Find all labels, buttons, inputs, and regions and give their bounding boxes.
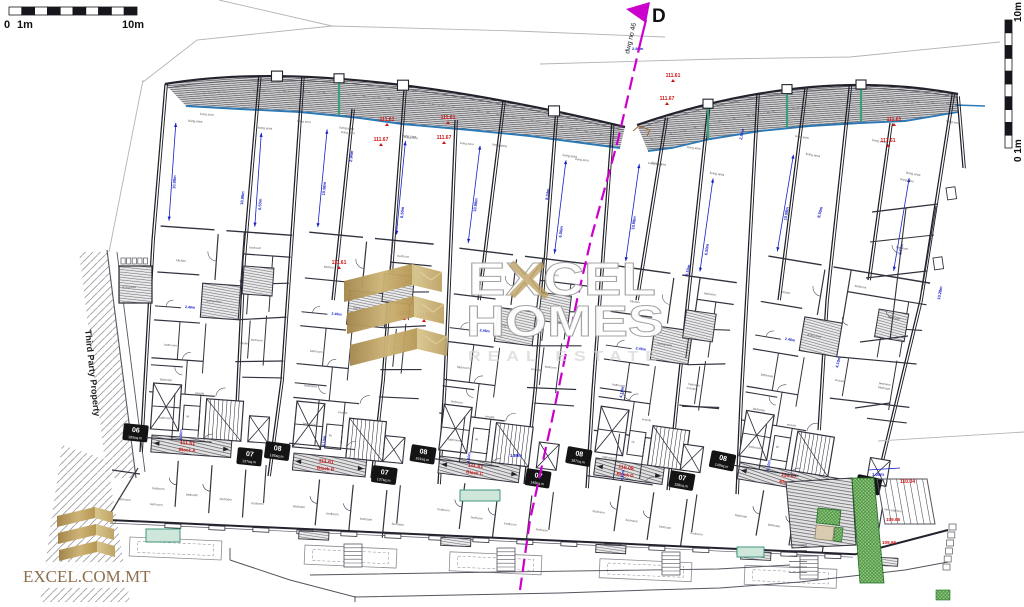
svg-text:ensuite: ensuite: [195, 391, 205, 396]
svg-text:07: 07: [678, 474, 687, 482]
svg-text:111.61: 111.61: [441, 115, 456, 121]
svg-text:2.46m: 2.46m: [185, 305, 195, 310]
svg-text:1.00m: 1.00m: [872, 472, 884, 477]
svg-text:111.67: 111.67: [660, 96, 675, 102]
svg-text:110.04: 110.04: [900, 479, 915, 485]
svg-text:drying area: drying area: [122, 285, 136, 289]
svg-text:109.65: 109.65: [886, 517, 900, 522]
svg-text:ensuite: ensuite: [239, 341, 249, 346]
svg-text:4.10m: 4.10m: [179, 429, 184, 441]
svg-text:08: 08: [575, 450, 584, 458]
svg-text:living area: living area: [200, 112, 214, 117]
svg-text:08: 08: [273, 445, 282, 453]
svg-text:lift: lift: [186, 414, 189, 418]
svg-text:REAL ESTATE: REAL ESTATE: [468, 348, 664, 365]
svg-text:HOMES: HOMES: [466, 297, 664, 346]
svg-text:07: 07: [534, 472, 543, 480]
svg-text:D: D: [652, 6, 666, 27]
svg-text:6.50m: 6.50m: [257, 198, 263, 210]
svg-text:111.61: 111.61: [666, 73, 681, 79]
svg-text:0: 0: [4, 19, 10, 31]
svg-text:07: 07: [246, 451, 255, 459]
svg-text:08: 08: [419, 448, 428, 456]
svg-text:111.67: 111.67: [374, 137, 389, 143]
svg-text:111.67: 111.67: [437, 135, 452, 141]
svg-text:06: 06: [132, 427, 141, 435]
svg-text:111.61: 111.61: [380, 117, 395, 123]
svg-text:10.98m: 10.98m: [171, 175, 177, 189]
svg-text:1m: 1m: [17, 19, 33, 31]
svg-text:EXCEL.COM.MT: EXCEL.COM.MT: [23, 567, 151, 586]
svg-text:10m: 10m: [1013, 2, 1024, 22]
svg-text:109.65: 109.65: [882, 540, 896, 545]
svg-text:111.61: 111.61: [887, 117, 902, 123]
svg-text:10m: 10m: [122, 19, 144, 31]
svg-text:0 1m: 0 1m: [1013, 139, 1024, 162]
svg-text:117.61: 117.61: [880, 138, 895, 144]
svg-text:1.80m: 1.80m: [510, 453, 522, 458]
svg-text:kitchen: kitchen: [176, 258, 186, 263]
svg-text:07: 07: [380, 469, 389, 477]
svg-text:111.61: 111.61: [332, 260, 347, 266]
